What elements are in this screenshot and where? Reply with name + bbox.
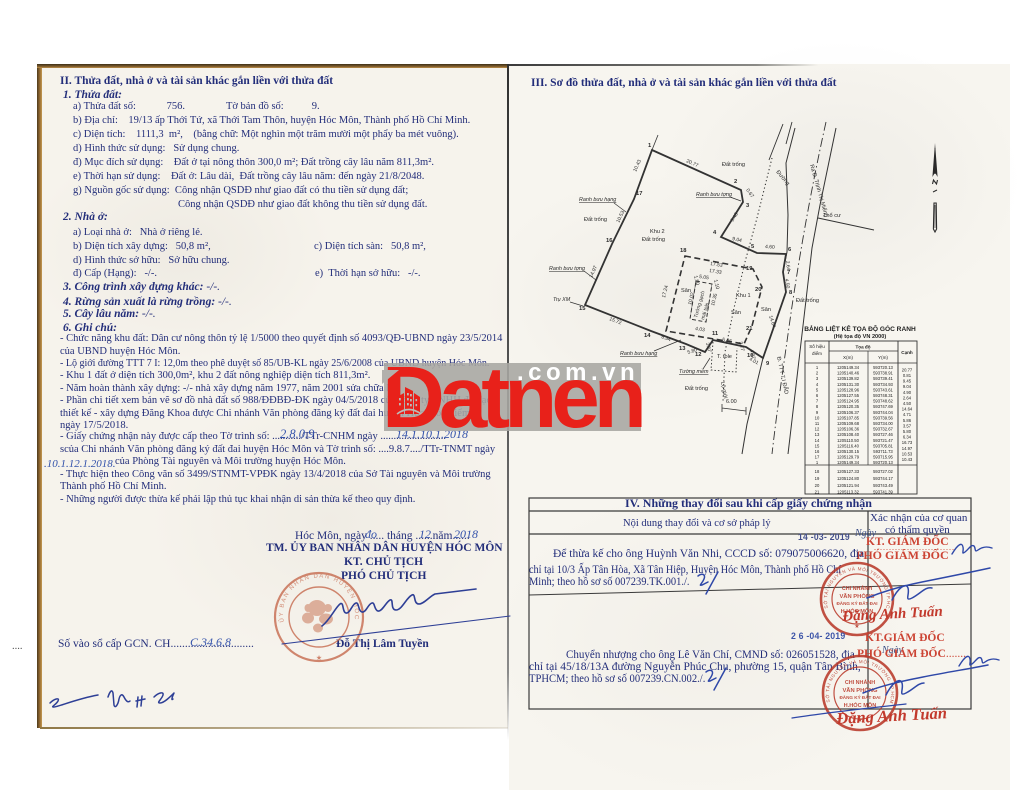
svg-text:1205127.33: 1205127.33 [837, 469, 860, 474]
svg-text:593720.13: 593720.13 [873, 365, 893, 370]
svg-text:10: 10 [815, 415, 820, 420]
svg-text:4: 4 [713, 230, 717, 236]
svg-text:Khu 2: Khu 2 [650, 229, 665, 235]
svg-text:4.90: 4.90 [903, 390, 912, 395]
svg-text:X(m): X(m) [843, 355, 853, 360]
svg-text:4.50: 4.50 [783, 278, 791, 289]
svg-text:6: 6 [788, 247, 792, 253]
svg-text:Đất trống: Đất trống [796, 298, 819, 304]
svg-text:1205108.40: 1205108.40 [837, 432, 860, 437]
svg-text:18: 18 [680, 248, 687, 254]
svg-text:15.72: 15.72 [608, 316, 622, 326]
svg-text:Khu 1: Khu 1 [736, 293, 751, 299]
svg-text:1205140.46: 1205140.46 [837, 371, 860, 376]
svg-text:1205139.82: 1205139.82 [837, 376, 860, 381]
svg-text:11: 11 [815, 421, 820, 426]
svg-text:Đường: Đường [774, 169, 790, 186]
svg-text:20.77: 20.77 [902, 368, 913, 373]
svg-text:11: 11 [712, 331, 719, 337]
svg-text:17.24: 17.24 [661, 285, 670, 299]
svg-text:Ranh bưu hạng: Ranh bưu hạng [579, 197, 616, 203]
svg-text:593748.31: 593748.31 [873, 393, 893, 398]
svg-text:593741.39: 593741.39 [873, 490, 893, 495]
svg-text:8: 8 [789, 290, 793, 296]
svg-text:1: 1 [648, 143, 652, 149]
svg-text:7: 7 [816, 399, 819, 404]
svg-text:Sân: Sân [761, 307, 771, 313]
svg-text:4.50: 4.50 [903, 401, 912, 406]
svg-text:7: 7 [787, 270, 790, 276]
svg-text:10.53: 10.53 [902, 451, 913, 456]
svg-text:10.35: 10.35 [710, 293, 719, 307]
svg-text:14.64: 14.64 [767, 315, 777, 329]
svg-text:593739.41: 593739.41 [873, 376, 893, 381]
svg-text:593734.93: 593734.93 [873, 382, 893, 387]
svg-text:5.86: 5.86 [722, 337, 733, 345]
svg-text:21: 21 [746, 326, 753, 332]
svg-text:Ra Đ. Trịnh Thị Miếng: Ra Đ. Trịnh Thị Miếng [808, 164, 829, 218]
svg-text:2: 2 [816, 371, 819, 376]
svg-text:1205110.50: 1205110.50 [837, 438, 859, 443]
svg-text:4: 4 [816, 382, 819, 387]
svg-text:Đất trống: Đất trống [722, 162, 745, 168]
svg-text:19: 19 [746, 266, 753, 272]
svg-text:593743.49: 593743.49 [873, 483, 893, 488]
svg-text:Lộ giới: Lộ giới [719, 381, 728, 399]
svg-text:21: 21 [815, 490, 820, 495]
svg-text:14: 14 [644, 333, 651, 339]
svg-text:1205129.79: 1205129.79 [837, 455, 860, 460]
svg-text:1205121.94: 1205121.94 [837, 483, 860, 488]
svg-text:9: 9 [766, 361, 770, 367]
svg-text:Ranh bưu tợng: Ranh bưu tợng [696, 192, 732, 198]
svg-text:593720.13: 593720.13 [873, 460, 893, 465]
svg-text:Đất trống: Đất trống [685, 386, 708, 392]
svg-text:1205149.34: 1205149.34 [837, 365, 860, 370]
svg-text:★: ★ [316, 654, 322, 662]
svg-text:Ranh bưu tợng: Ranh bưu tợng [549, 266, 585, 272]
svg-text:16: 16 [606, 238, 613, 244]
svg-text:593715.95: 593715.95 [873, 455, 893, 460]
svg-text:6: 6 [816, 393, 819, 398]
svg-text:1205106.36: 1205106.36 [837, 427, 860, 432]
svg-text:5.80: 5.80 [903, 429, 912, 434]
svg-text:15: 15 [579, 306, 586, 312]
svg-text:1205120.35: 1205120.35 [837, 404, 860, 409]
svg-text:5.86: 5.86 [903, 418, 912, 423]
svg-text:593705.81: 593705.81 [873, 443, 893, 448]
svg-text:14: 14 [815, 438, 820, 443]
svg-text:593739.56: 593739.56 [873, 415, 893, 420]
svg-text:Cạnh: Cạnh [901, 350, 913, 355]
svg-text:593747.69: 593747.69 [873, 404, 893, 409]
svg-text:15: 15 [815, 443, 820, 448]
svg-text:17: 17 [815, 455, 820, 460]
svg-text:1205116.40: 1205116.40 [837, 443, 859, 448]
svg-text:Trụ XM: Trụ XM [553, 297, 571, 303]
svg-text:9.45: 9.45 [903, 379, 912, 384]
svg-text:593727.46: 593727.46 [873, 432, 893, 437]
svg-text:5: 5 [751, 244, 755, 250]
svg-text:1205124.95: 1205124.95 [837, 399, 860, 404]
svg-text:593727.02: 593727.02 [873, 469, 893, 474]
svg-text:16: 16 [815, 449, 820, 454]
svg-text:6.00: 6.00 [726, 399, 737, 405]
svg-text:2.64: 2.64 [784, 261, 791, 272]
svg-text:8: 8 [816, 404, 819, 409]
svg-text:Sân: Sân [681, 288, 691, 294]
svg-text:Sân: Sân [731, 310, 741, 316]
svg-text:T. tole: T. tole [717, 354, 732, 360]
svg-text:Tường mềm: Tường mềm [679, 369, 709, 375]
svg-text:14.64: 14.64 [902, 407, 913, 412]
svg-text:0.81: 0.81 [903, 373, 912, 378]
svg-text:1205128.96: 1205128.96 [837, 387, 860, 392]
svg-text:5: 5 [816, 387, 819, 392]
svg-text:điểm: điểm [812, 350, 822, 356]
svg-text:BẢNG LIỆT KÊ TỌA ĐỘ GÓC RANH: BẢNG LIỆT KÊ TỌA ĐỘ GÓC RANH [804, 324, 916, 333]
svg-text:593744.04: 593744.04 [873, 410, 893, 415]
svg-text:18: 18 [815, 469, 820, 474]
svg-text:1205124.80: 1205124.80 [837, 476, 860, 481]
svg-text:9: 9 [816, 410, 819, 415]
svg-text:1: 1 [816, 460, 819, 465]
svg-text:4.71: 4.71 [903, 412, 912, 417]
svg-text:Số hiệu: Số hiệu [809, 344, 825, 349]
svg-text:1.50: 1.50 [692, 275, 700, 286]
svg-text:3: 3 [746, 203, 750, 209]
svg-text:593711.73: 593711.73 [873, 449, 893, 454]
svg-text:9.43: 9.43 [730, 211, 740, 223]
svg-text:4.60: 4.60 [765, 244, 775, 251]
svg-text:3: 3 [816, 376, 819, 381]
svg-text:4.03: 4.03 [695, 326, 706, 333]
svg-text:1205106.37: 1205106.37 [837, 410, 860, 415]
svg-text:12: 12 [815, 427, 820, 432]
svg-text:10.43: 10.43 [632, 159, 643, 173]
svg-text:16.73: 16.73 [902, 440, 913, 445]
svg-text:Đất trống: Đất trống [642, 237, 665, 243]
svg-text:10.43: 10.43 [902, 457, 913, 462]
svg-text:5.05: 5.05 [699, 274, 710, 281]
svg-text:1205149.34: 1205149.34 [837, 460, 860, 465]
svg-text:20: 20 [755, 287, 761, 293]
svg-text:6.34: 6.34 [903, 435, 912, 440]
svg-text:593744.17: 593744.17 [873, 476, 893, 481]
svg-text:Tọa độ: Tọa độ [855, 345, 870, 350]
svg-text:593743.61: 593743.61 [873, 387, 893, 392]
svg-text:1205107.85: 1205107.85 [837, 415, 860, 420]
svg-text:Đ. TTT 7 I ĐẤD: Đ. TTT 7 I ĐẤD [775, 356, 790, 395]
svg-text:1205130.15: 1205130.15 [837, 449, 860, 454]
svg-text:1: 1 [816, 365, 819, 370]
svg-text:17: 17 [636, 191, 642, 197]
svg-text:1205131.30: 1205131.30 [837, 382, 860, 387]
svg-text:593738.91: 593738.91 [873, 371, 893, 376]
svg-text:9.04: 9.04 [903, 384, 912, 389]
svg-text:1205127.55: 1205127.55 [837, 393, 860, 398]
svg-text:20: 20 [815, 483, 820, 488]
svg-text:593748.62: 593748.62 [873, 399, 893, 404]
svg-text:593732.67: 593732.67 [873, 427, 893, 432]
svg-text:593721.47: 593721.47 [873, 438, 893, 443]
svg-text:1205109.68: 1205109.68 [837, 421, 860, 426]
svg-text:19: 19 [815, 476, 820, 481]
svg-text:2: 2 [734, 179, 737, 185]
svg-text:593734.00: 593734.00 [873, 421, 893, 426]
svg-text:14.97: 14.97 [902, 446, 913, 451]
svg-text:1205113.32: 1205113.32 [837, 490, 859, 495]
svg-text:17.33: 17.33 [709, 268, 723, 276]
svg-text:3.57: 3.57 [903, 423, 912, 428]
svg-text:6.34: 6.34 [660, 334, 671, 343]
svg-text:0.67: 0.67 [744, 188, 755, 200]
svg-text:13: 13 [679, 346, 686, 352]
svg-text:3.77: 3.77 [737, 341, 745, 352]
svg-text:Đất trống: Đất trống [584, 217, 607, 223]
svg-text:2.64: 2.64 [903, 395, 912, 400]
svg-text:13: 13 [815, 432, 820, 437]
svg-text:1.10: 1.10 [712, 279, 720, 290]
svg-text:Y(m): Y(m) [878, 355, 888, 360]
svg-text:(Hệ tọa độ VN 2000): (Hệ tọa độ VN 2000) [834, 334, 887, 340]
